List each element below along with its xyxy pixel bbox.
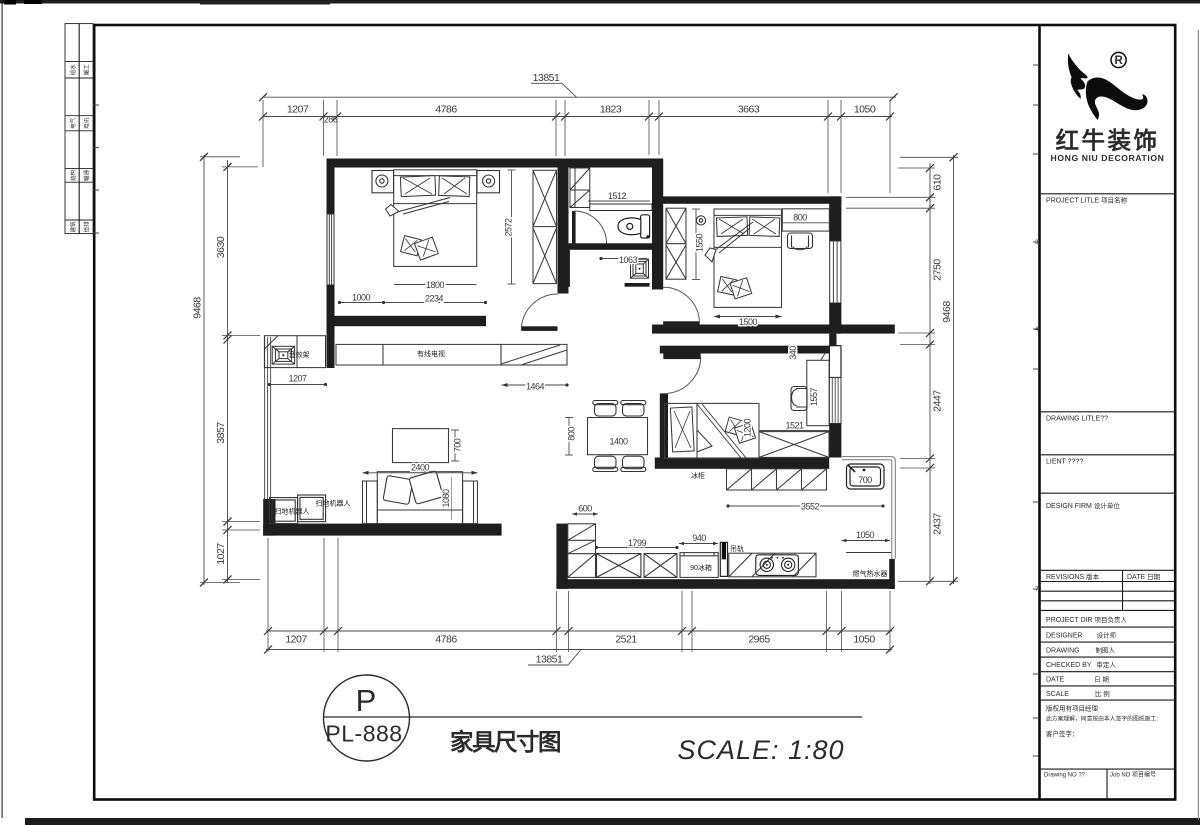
- svg-text:音效架: 音效架: [289, 350, 310, 359]
- svg-text:扫地机器人: 扫地机器人: [316, 499, 351, 508]
- svg-text:1063: 1063: [619, 255, 638, 265]
- svg-text:3552: 3552: [801, 502, 820, 512]
- svg-text:9468: 9468: [941, 301, 953, 323]
- svg-text:2447: 2447: [932, 390, 944, 412]
- svg-text:2965: 2965: [748, 634, 770, 646]
- svg-text:1800: 1800: [426, 280, 445, 290]
- svg-text:SCALE: 1:80: SCALE: 1:80: [677, 735, 844, 765]
- svg-text:HONG NIU DECORATION: HONG NIU DECORATION: [1051, 153, 1165, 163]
- svg-text:3630: 3630: [215, 236, 227, 258]
- svg-text:1521: 1521: [785, 421, 804, 431]
- svg-text:800: 800: [567, 427, 577, 441]
- svg-text:3857: 3857: [215, 422, 227, 444]
- svg-text:1512: 1512: [608, 191, 627, 201]
- svg-text:红牛装饰: 红牛装饰: [1056, 127, 1160, 154]
- svg-text:1050: 1050: [853, 634, 875, 646]
- svg-text:1823: 1823: [600, 104, 622, 116]
- svg-text:340: 340: [788, 346, 798, 360]
- svg-text:4786: 4786: [435, 634, 457, 646]
- svg-text:DATE 日期: DATE 日期: [1127, 573, 1161, 581]
- svg-text:DRAWING 制图人: DRAWING 制图人: [1046, 646, 1116, 655]
- svg-text:1080: 1080: [441, 489, 451, 508]
- svg-text:13851: 13851: [533, 72, 560, 84]
- svg-text:P: P: [356, 683, 377, 718]
- svg-text:90冰箱: 90冰箱: [690, 563, 712, 572]
- svg-text:1207: 1207: [287, 104, 309, 116]
- svg-text:给排: 给排: [82, 221, 90, 233]
- svg-text:暖工: 暖工: [82, 64, 90, 76]
- svg-text:冰柜: 冰柜: [691, 471, 705, 480]
- svg-text:610: 610: [932, 174, 944, 191]
- svg-text:4786: 4786: [435, 104, 457, 116]
- svg-text:700: 700: [858, 475, 872, 485]
- svg-text:LIENT ????: LIENT ????: [1046, 459, 1083, 466]
- svg-text:CHECKED BY 审定人: CHECKED BY 审定人: [1046, 660, 1116, 669]
- svg-text:9468: 9468: [192, 297, 204, 319]
- svg-text:1050: 1050: [854, 104, 876, 116]
- svg-text:DESIGNER 设计师: DESIGNER 设计师: [1046, 631, 1117, 640]
- svg-text:1400: 1400: [609, 437, 628, 447]
- svg-text:电讯: 电讯: [82, 117, 90, 129]
- svg-text:Job NO 项目编号: Job NO 项目编号: [1110, 771, 1156, 779]
- svg-text:DRAWING LITLE??: DRAWING LITLE??: [1046, 416, 1108, 423]
- svg-text:1500: 1500: [739, 317, 758, 327]
- svg-text:3663: 3663: [738, 104, 760, 116]
- svg-text:有线电视: 有线电视: [417, 349, 445, 358]
- svg-text:2400: 2400: [411, 463, 430, 473]
- svg-text:1207: 1207: [288, 374, 307, 384]
- svg-text:1207: 1207: [285, 634, 307, 646]
- svg-text:REVISIONS 版本: REVISIONS 版本: [1046, 572, 1100, 581]
- svg-text:13851: 13851: [536, 654, 563, 666]
- svg-text:版权用有项目经理: 版权用有项目经理: [1046, 704, 1099, 713]
- svg-text:PROJECT LITLE 项目名称: PROJECT LITLE 项目名称: [1046, 196, 1128, 205]
- svg-text:2572: 2572: [504, 218, 514, 237]
- svg-text:扫地机器人: 扫地机器人: [275, 507, 310, 516]
- svg-text:此方案理解，同意按由本人签字的图纸施工：: 此方案理解，同意按由本人签字的图纸施工：: [1046, 715, 1162, 723]
- svg-text:286: 286: [324, 115, 338, 125]
- svg-text:2750: 2750: [932, 259, 944, 281]
- svg-text:2234: 2234: [425, 294, 444, 304]
- svg-text:燃气热水器: 燃气热水器: [853, 569, 888, 578]
- svg-text:1000: 1000: [352, 293, 371, 303]
- svg-text:给水: 给水: [69, 64, 77, 76]
- svg-text:940: 940: [692, 533, 706, 543]
- svg-text:Drawing NO ??: Drawing NO ??: [1044, 773, 1086, 779]
- svg-text:1557: 1557: [809, 387, 819, 406]
- svg-text:2437: 2437: [932, 513, 944, 535]
- svg-text:1200: 1200: [743, 418, 753, 437]
- svg-text:2521: 2521: [615, 634, 637, 646]
- svg-text:结构: 结构: [69, 169, 77, 181]
- svg-text:R: R: [1114, 55, 1123, 67]
- svg-text:暖通: 暖通: [82, 169, 90, 181]
- svg-text:1464: 1464: [526, 382, 545, 392]
- svg-text:1027: 1027: [215, 543, 227, 565]
- svg-text:1050: 1050: [856, 530, 875, 540]
- svg-text:800: 800: [793, 213, 807, 223]
- svg-text:1799: 1799: [628, 538, 647, 548]
- svg-text:700: 700: [453, 438, 463, 452]
- svg-text:电气: 电气: [69, 117, 77, 129]
- svg-text:DESIGN FIRM 设计单位: DESIGN FIRM 设计单位: [1046, 501, 1120, 510]
- svg-text:1550: 1550: [695, 233, 705, 252]
- svg-text:PROJECT DIR 项目负责人: PROJECT DIR 项目负责人: [1046, 615, 1128, 624]
- svg-text:客户签字：: 客户签字：: [1046, 729, 1079, 738]
- svg-text:家具尺寸图: 家具尺寸图: [450, 728, 560, 755]
- svg-text:吊轨: 吊轨: [730, 544, 744, 553]
- svg-text:建筑: 建筑: [69, 221, 77, 233]
- svg-text:PL-888: PL-888: [325, 721, 402, 747]
- svg-text:600: 600: [578, 504, 592, 514]
